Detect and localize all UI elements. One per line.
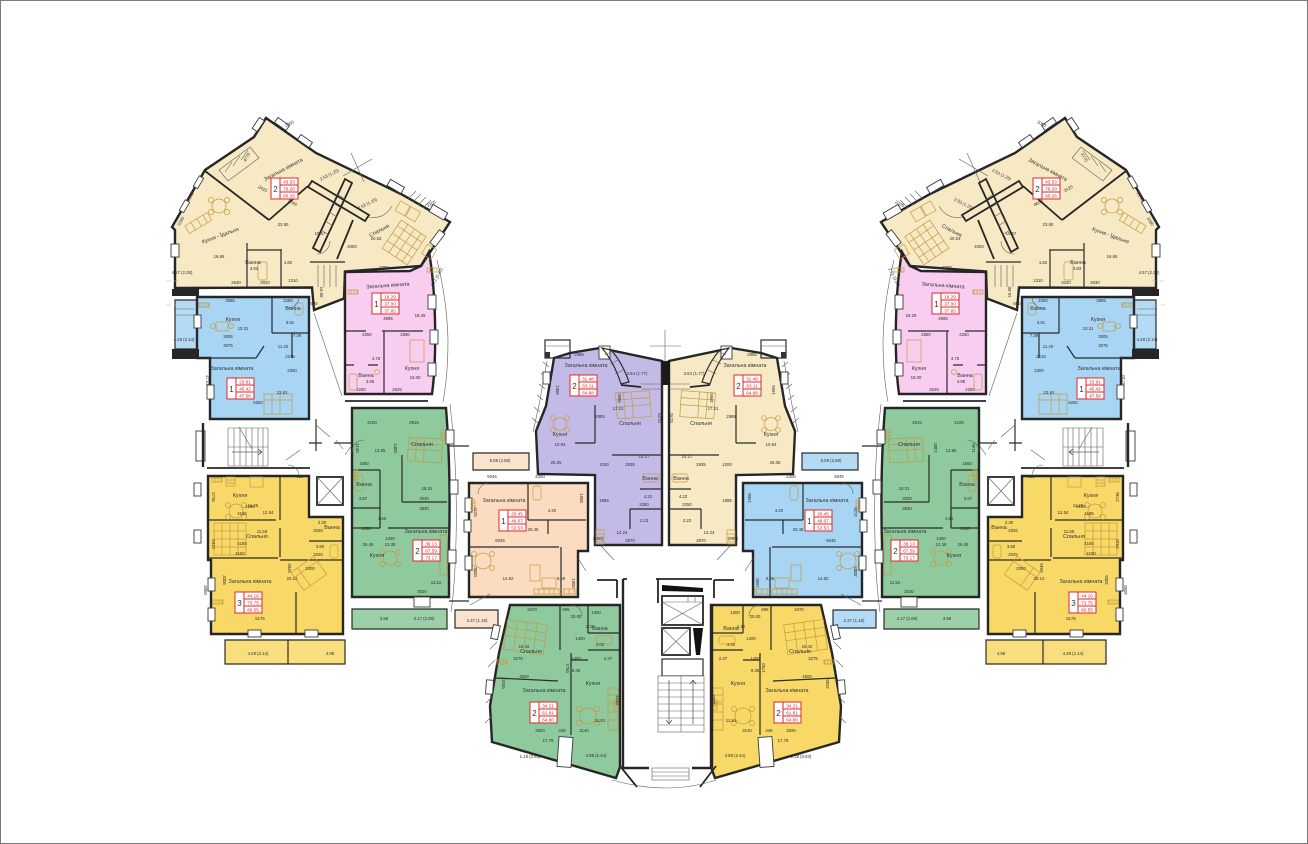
svg-text:18.00: 18.00: [911, 375, 922, 380]
svg-text:3185: 3185: [825, 679, 830, 689]
svg-text:2020: 2020: [1061, 280, 1071, 285]
svg-text:2: 2: [415, 547, 420, 556]
svg-text:2250: 2250: [362, 332, 372, 337]
svg-text:5175: 5175: [255, 616, 265, 621]
svg-text:80.55: 80.55: [1081, 608, 1093, 613]
svg-text:2250: 2250: [356, 387, 366, 392]
svg-text:2: 2: [776, 709, 781, 718]
svg-text:20.53: 20.53: [950, 236, 961, 241]
svg-text:11.40: 11.40: [278, 344, 289, 349]
svg-text:18.29: 18.29: [944, 295, 956, 300]
svg-text:2.30: 2.30: [318, 520, 327, 525]
svg-text:650: 650: [296, 474, 304, 479]
svg-text:1900: 1900: [747, 493, 752, 503]
svg-text:3965: 3965: [1096, 298, 1106, 303]
svg-text:10.57: 10.57: [315, 231, 326, 236]
svg-text:16.50: 16.50: [319, 287, 324, 298]
svg-text:31.48: 31.48: [746, 377, 758, 382]
svg-text:1: 1: [374, 300, 379, 309]
svg-text:4500: 4500: [802, 674, 812, 679]
svg-text:3965: 3965: [225, 298, 235, 303]
svg-text:18.29: 18.29: [384, 295, 396, 300]
svg-text:17.79: 17.79: [543, 738, 554, 743]
svg-text:23.90: 23.90: [278, 222, 289, 227]
svg-text:11.59: 11.59: [1064, 529, 1075, 534]
svg-text:1145: 1145: [355, 443, 360, 453]
svg-text:2300: 2300: [287, 368, 297, 373]
svg-text:10.57: 10.57: [1006, 231, 1017, 236]
svg-text:Ванна: Ванна: [592, 626, 608, 632]
svg-text:63.11: 63.11: [746, 384, 758, 389]
svg-text:1.66: 1.66: [378, 516, 387, 521]
svg-text:36.13: 36.13: [903, 542, 915, 547]
svg-text:16.65: 16.65: [214, 254, 225, 259]
svg-text:2215: 2215: [285, 354, 295, 359]
svg-text:695: 695: [761, 607, 769, 612]
svg-text:4710: 4710: [205, 375, 210, 385]
svg-text:11.59: 11.59: [257, 529, 268, 534]
svg-text:4125: 4125: [473, 507, 478, 517]
svg-text:4.28 (2.14): 4.28 (2.14): [174, 337, 195, 342]
svg-text:10.31: 10.31: [238, 326, 249, 331]
svg-text:2915: 2915: [1115, 539, 1120, 549]
svg-text:37.00: 37.00: [384, 302, 396, 307]
svg-text:7.39: 7.39: [293, 333, 302, 338]
svg-text:64.80: 64.80: [786, 718, 798, 723]
svg-text:1900: 1900: [755, 578, 760, 588]
svg-text:1955: 1955: [771, 385, 776, 395]
svg-text:Загальна кімната: Загальна кімната: [723, 363, 766, 369]
svg-text:1400: 1400: [571, 656, 581, 661]
svg-text:1.18 (0.83): 1.18 (0.83): [520, 754, 541, 759]
svg-text:14.82: 14.82: [818, 576, 829, 581]
svg-text:14.24: 14.24: [617, 530, 628, 535]
svg-text:1955: 1955: [555, 385, 560, 395]
svg-text:47.58: 47.58: [1089, 394, 1101, 399]
svg-text:3005: 3005: [1098, 334, 1108, 339]
svg-text:Кухня: Кухня: [405, 366, 420, 372]
svg-text:3030: 3030: [417, 589, 427, 594]
svg-text:34.21: 34.21: [542, 704, 554, 709]
svg-text:3185: 3185: [501, 679, 506, 689]
svg-text:Загальна кімната: Загальна кімната: [522, 688, 565, 694]
svg-text:4.02: 4.02: [596, 642, 605, 647]
svg-text:Кухня: Кухня: [1084, 493, 1099, 499]
svg-text:2: 2: [532, 709, 537, 718]
svg-text:445: 445: [558, 728, 566, 733]
svg-text:12.54: 12.54: [263, 510, 274, 515]
svg-text:1310: 1310: [288, 278, 298, 283]
svg-text:3945: 3945: [287, 563, 292, 573]
svg-text:3700: 3700: [379, 265, 389, 270]
svg-text:4185: 4185: [237, 541, 247, 546]
svg-text:4.88 (2.44): 4.88 (2.44): [725, 753, 746, 758]
svg-text:1885: 1885: [599, 498, 609, 503]
svg-text:1750: 1750: [565, 663, 570, 673]
svg-text:7.39: 7.39: [1030, 333, 1039, 338]
svg-text:80.26: 80.26: [1045, 194, 1057, 199]
svg-text:20.14: 20.14: [1034, 576, 1045, 581]
svg-text:5045: 5045: [487, 474, 497, 479]
svg-text:4185: 4185: [1084, 511, 1094, 516]
svg-text:2.32: 2.32: [586, 624, 595, 629]
svg-text:26.45: 26.45: [958, 542, 969, 547]
svg-text:44.16: 44.16: [1081, 594, 1093, 599]
svg-text:1400: 1400: [575, 636, 585, 641]
svg-text:2580: 2580: [921, 332, 931, 337]
svg-text:64.88: 64.88: [582, 391, 594, 396]
svg-text:2.23: 2.23: [683, 518, 692, 523]
svg-text:1145: 1145: [971, 443, 976, 453]
svg-text:2985: 2985: [595, 414, 605, 419]
svg-text:4.78: 4.78: [372, 356, 381, 361]
svg-text:Ванна: Ванна: [991, 525, 1007, 531]
svg-text:18.00: 18.00: [410, 375, 421, 380]
svg-text:37.00: 37.00: [944, 302, 956, 307]
svg-text:23.91: 23.91: [1089, 380, 1101, 385]
svg-text:2.32: 2.32: [737, 624, 746, 629]
svg-text:3.80: 3.80: [1007, 544, 1016, 549]
svg-text:14.82: 14.82: [503, 576, 514, 581]
svg-text:2935: 2935: [625, 462, 635, 467]
svg-text:3830: 3830: [902, 506, 912, 511]
svg-text:5.08 (2.58): 5.08 (2.58): [490, 458, 511, 463]
svg-text:Загальна кімната: Загальна кімната: [805, 498, 848, 504]
svg-text:20.45: 20.45: [511, 512, 523, 517]
svg-text:Загальна кімната: Загальна кімната: [564, 363, 607, 369]
svg-text:61.81: 61.81: [542, 711, 554, 716]
svg-text:67.59: 67.59: [425, 549, 437, 554]
svg-text:23.91: 23.91: [277, 390, 288, 395]
svg-text:3.67: 3.67: [359, 496, 368, 501]
svg-text:Ванна: Ванна: [285, 306, 301, 312]
svg-text:4.20: 4.20: [548, 508, 557, 513]
svg-text:17.79: 17.79: [778, 738, 789, 743]
svg-text:Кухня: Кухня: [233, 493, 248, 499]
svg-text:2870: 2870: [696, 538, 706, 543]
svg-text:47.58: 47.58: [239, 394, 251, 399]
svg-text:11.52: 11.52: [431, 580, 442, 585]
svg-text:Кухня: Кухня: [912, 366, 927, 372]
svg-text:2736: 2736: [211, 492, 216, 502]
svg-text:Ванна: Ванна: [673, 476, 689, 482]
svg-text:2.30: 2.30: [1005, 520, 1014, 525]
svg-text:5.08 (2.58): 5.08 (2.58): [821, 458, 842, 463]
svg-text:5270: 5270: [657, 413, 662, 423]
svg-text:1: 1: [807, 517, 812, 526]
svg-text:1: 1: [934, 300, 939, 309]
svg-text:14.27: 14.27: [682, 454, 693, 459]
svg-text:Спальня: Спальня: [1063, 534, 1085, 540]
svg-text:Загальна кімната: Загальна кімната: [228, 579, 271, 585]
svg-text:3.80: 3.80: [316, 544, 325, 549]
svg-text:4050: 4050: [1123, 585, 1128, 595]
svg-text:1650: 1650: [962, 461, 972, 466]
svg-text:20.45: 20.45: [817, 512, 829, 517]
svg-text:1400: 1400: [746, 636, 756, 641]
svg-text:3075: 3075: [223, 343, 233, 348]
svg-text:4.98: 4.98: [326, 651, 335, 656]
svg-text:4.57 (2.28): 4.57 (2.28): [1139, 270, 1160, 275]
svg-text:4.28 (2.14): 4.28 (2.14): [248, 651, 269, 656]
svg-text:18.29: 18.29: [906, 313, 917, 318]
svg-text:4995: 4995: [938, 316, 948, 321]
svg-text:2935: 2935: [696, 462, 706, 467]
svg-text:2025: 2025: [313, 552, 323, 557]
svg-text:73.75: 73.75: [247, 601, 259, 606]
svg-text:4000: 4000: [974, 244, 984, 249]
svg-text:3945: 3945: [1039, 563, 1044, 573]
svg-text:1900: 1900: [579, 493, 584, 503]
svg-text:3.58: 3.58: [380, 616, 389, 621]
svg-text:(420): (420): [593, 536, 604, 541]
svg-text:1650: 1650: [960, 526, 970, 531]
svg-text:11.81: 11.81: [726, 718, 737, 723]
svg-text:63.11: 63.11: [582, 384, 594, 389]
svg-text:3.83: 3.83: [250, 266, 259, 271]
svg-text:Спальня: Спальня: [690, 421, 712, 427]
svg-text:4.57 (2.28): 4.57 (2.28): [172, 270, 193, 275]
svg-text:43.53: 43.53: [283, 180, 295, 185]
svg-text:3030: 3030: [419, 496, 429, 501]
svg-text:16.42: 16.42: [519, 644, 530, 649]
svg-text:3075: 3075: [1098, 343, 1108, 348]
svg-text:49.07: 49.07: [817, 519, 829, 524]
svg-text:73.17: 73.17: [903, 556, 915, 561]
svg-text:11.52: 11.52: [890, 580, 901, 585]
svg-text:Спальня: Спальня: [520, 649, 542, 655]
svg-text:26.05: 26.05: [770, 460, 781, 465]
svg-text:2250: 2250: [639, 502, 649, 507]
svg-text:Загальна кімната: Загальна кімната: [883, 529, 926, 535]
svg-text:5270: 5270: [669, 413, 674, 423]
svg-text:2.37: 2.37: [604, 656, 613, 661]
svg-text:Кухня: Кухня: [764, 432, 779, 438]
svg-text:2.23: 2.23: [640, 518, 649, 523]
svg-text:Кухня: Кухня: [370, 553, 385, 559]
svg-text:3: 3: [237, 599, 242, 608]
svg-text:1200: 1200: [722, 462, 732, 467]
svg-text:20.00: 20.00: [750, 614, 761, 619]
svg-text:4140: 4140: [711, 695, 716, 705]
svg-text:4.17 (2.08): 4.17 (2.08): [897, 616, 918, 621]
svg-text:1400: 1400: [933, 443, 938, 453]
svg-text:3.91: 3.91: [1037, 320, 1046, 325]
svg-text:4.78: 4.78: [951, 356, 960, 361]
svg-text:4710: 4710: [1121, 375, 1126, 385]
svg-text:2.37: 2.37: [719, 656, 728, 661]
svg-text:3140: 3140: [742, 728, 752, 733]
svg-text:73.75: 73.75: [1081, 601, 1093, 606]
svg-text:3030: 3030: [904, 589, 914, 594]
svg-text:1650: 1650: [361, 526, 371, 531]
svg-text:Спальня: Спальня: [789, 649, 811, 655]
svg-text:64.88: 64.88: [746, 391, 758, 396]
svg-text:4.22: 4.22: [679, 494, 688, 499]
svg-text:18.29: 18.29: [415, 313, 426, 318]
svg-text:6250: 6250: [1068, 400, 1078, 405]
svg-text:3.54 (1.77): 3.54 (1.77): [627, 371, 648, 376]
svg-text:4150: 4150: [235, 551, 245, 556]
svg-text:1.18 (0.83): 1.18 (0.83): [791, 754, 812, 759]
svg-text:3030: 3030: [902, 496, 912, 501]
svg-text:Кухня: Кухня: [226, 317, 241, 323]
svg-text:500: 500: [310, 301, 318, 306]
svg-text:17.21: 17.21: [613, 406, 624, 411]
svg-text:9.68: 9.68: [766, 576, 775, 581]
svg-text:44.16: 44.16: [247, 594, 259, 599]
svg-text:6250: 6250: [253, 400, 263, 405]
svg-text:4995: 4995: [383, 316, 393, 321]
svg-text:13.55: 13.55: [946, 448, 957, 453]
svg-text:1750: 1750: [761, 663, 766, 673]
svg-text:3140: 3140: [579, 728, 589, 733]
svg-text:3000: 3000: [853, 567, 858, 577]
svg-text:26.05: 26.05: [551, 460, 562, 465]
svg-text:2915: 2915: [912, 420, 922, 425]
svg-text:4.28 (2.14): 4.28 (2.14): [1063, 651, 1084, 656]
svg-text:Ванна: Ванна: [356, 482, 372, 488]
svg-text:3275: 3275: [513, 656, 523, 661]
svg-text:1300: 1300: [730, 610, 740, 615]
svg-text:45.42: 45.42: [239, 387, 251, 392]
svg-text:3000: 3000: [473, 567, 478, 577]
svg-text:2020: 2020: [260, 280, 270, 285]
svg-text:1: 1: [1079, 385, 1084, 394]
svg-text:18.31: 18.31: [422, 486, 433, 491]
svg-text:Кухня: Кухня: [1091, 317, 1106, 323]
svg-text:20.53: 20.53: [371, 236, 382, 241]
svg-text:2250: 2250: [283, 298, 293, 303]
svg-text:11.25: 11.25: [1073, 503, 1084, 508]
svg-text:5045: 5045: [834, 474, 844, 479]
svg-text:9.35: 9.35: [751, 668, 760, 673]
svg-text:3.83: 3.83: [1073, 266, 1082, 271]
svg-text:1.82: 1.82: [1039, 260, 1048, 265]
svg-text:1300: 1300: [591, 610, 601, 615]
svg-text:2915: 2915: [409, 420, 419, 425]
svg-text:3.67: 3.67: [964, 496, 973, 501]
svg-text:Спальня: Спальня: [246, 534, 268, 540]
svg-text:17.21: 17.21: [708, 406, 719, 411]
svg-text:1: 1: [229, 385, 234, 394]
svg-text:Ванна: Ванна: [642, 476, 658, 482]
svg-text:Загальна кімната: Загальна кімната: [765, 688, 808, 694]
svg-text:1310: 1310: [1033, 278, 1043, 283]
svg-text:1200: 1200: [599, 462, 609, 467]
svg-text:6045: 6045: [826, 538, 836, 543]
svg-text:2625: 2625: [929, 387, 939, 392]
svg-text:3965: 3965: [617, 393, 622, 403]
svg-text:1885: 1885: [722, 498, 732, 503]
svg-text:2915: 2915: [211, 539, 216, 549]
svg-text:2985: 2985: [726, 414, 736, 419]
svg-text:Загальна кімната: Загальна кімната: [404, 529, 447, 535]
svg-text:2: 2: [273, 185, 278, 194]
svg-text:Спальня: Спальня: [619, 421, 641, 427]
svg-text:23.91: 23.91: [1044, 390, 1055, 395]
svg-text:2250: 2250: [1038, 298, 1048, 303]
svg-text:Ванна: Ванна: [1030, 306, 1046, 312]
svg-text:2630: 2630: [231, 280, 241, 285]
svg-text:2820: 2820: [535, 728, 545, 733]
svg-text:3830: 3830: [419, 506, 429, 511]
svg-text:2985: 2985: [574, 352, 584, 357]
svg-text:20.45: 20.45: [528, 527, 539, 532]
svg-text:2.37 (1.18): 2.37 (1.18): [467, 618, 488, 623]
svg-text:4185: 4185: [237, 511, 247, 516]
svg-text:76.20: 76.20: [1045, 187, 1057, 192]
svg-text:45.42: 45.42: [1089, 387, 1101, 392]
svg-text:Спальня: Спальня: [898, 442, 920, 448]
svg-text:Ванна: Ванна: [324, 525, 340, 531]
svg-text:3305: 3305: [222, 575, 227, 585]
svg-text:2870: 2870: [625, 538, 635, 543]
svg-text:26.45: 26.45: [363, 542, 374, 547]
svg-text:12.38: 12.38: [385, 542, 396, 547]
svg-text:1400: 1400: [750, 656, 760, 661]
svg-text:11.81: 11.81: [595, 718, 606, 723]
svg-text:12.54: 12.54: [1058, 510, 1069, 515]
svg-text:2: 2: [736, 382, 741, 391]
svg-text:2250: 2250: [959, 332, 969, 337]
svg-text:Ванна: Ванна: [959, 482, 975, 488]
svg-text:2985: 2985: [747, 352, 757, 357]
svg-text:67.59: 67.59: [903, 549, 915, 554]
svg-text:4050: 4050: [203, 585, 208, 595]
svg-text:2025: 2025: [1008, 552, 1018, 557]
svg-text:23.91: 23.91: [239, 380, 251, 385]
svg-text:4.98: 4.98: [997, 651, 1006, 656]
svg-text:4.02: 4.02: [727, 642, 736, 647]
svg-text:3.54 (1.77): 3.54 (1.77): [684, 371, 705, 376]
svg-text:13.55: 13.55: [375, 448, 386, 453]
svg-text:Кухня: Кухня: [586, 681, 601, 687]
svg-text:31.48: 31.48: [582, 377, 594, 382]
svg-text:4.17 (2.08): 4.17 (2.08): [414, 616, 435, 621]
svg-text:1.66: 1.66: [945, 516, 954, 521]
svg-text:2.37 (1.18): 2.37 (1.18): [844, 618, 865, 623]
svg-text:4125: 4125: [853, 507, 858, 517]
svg-text:2300: 2300: [1034, 368, 1044, 373]
svg-text:445: 445: [765, 728, 773, 733]
svg-text:4.20: 4.20: [775, 508, 784, 513]
svg-text:2: 2: [1035, 185, 1040, 194]
svg-text:3.95: 3.95: [957, 379, 966, 384]
svg-text:4140: 4140: [615, 695, 620, 705]
svg-text:4150: 4150: [1086, 551, 1096, 556]
svg-text:Спальня: Спальня: [411, 442, 433, 448]
svg-text:Загальна кімната: Загальна кімната: [1077, 366, 1120, 372]
svg-text:4185: 4185: [1084, 541, 1094, 546]
svg-text:53.53: 53.53: [511, 526, 523, 531]
svg-text:2820: 2820: [786, 728, 796, 733]
svg-text:3305: 3305: [1104, 575, 1109, 585]
svg-text:73.17: 73.17: [425, 556, 437, 561]
svg-text:37.82: 37.82: [384, 309, 396, 314]
svg-text:2000: 2000: [1016, 566, 1026, 571]
svg-text:3.91: 3.91: [286, 320, 295, 325]
svg-text:2630: 2630: [1090, 280, 1100, 285]
svg-text:12.38: 12.38: [936, 542, 947, 547]
svg-text:3700: 3700: [942, 265, 952, 270]
svg-text:3005: 3005: [223, 334, 233, 339]
svg-text:2580: 2580: [400, 332, 410, 337]
svg-text:11.40: 11.40: [1043, 344, 1054, 349]
svg-text:76.20: 76.20: [283, 187, 295, 192]
svg-text:20.00: 20.00: [571, 614, 582, 619]
svg-text:695: 695: [562, 607, 570, 612]
